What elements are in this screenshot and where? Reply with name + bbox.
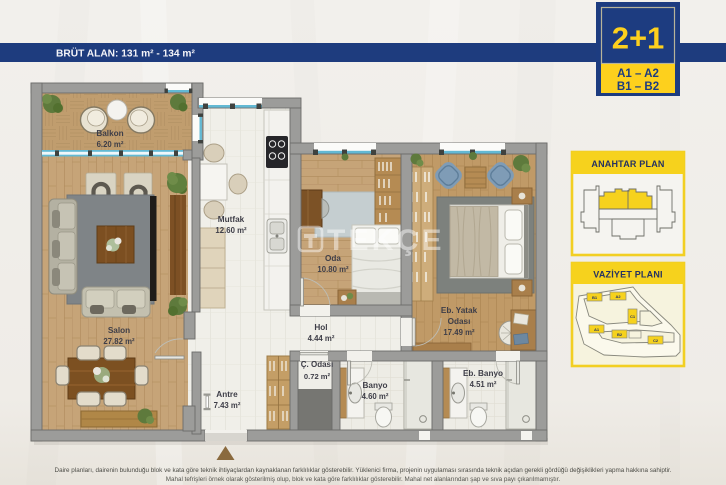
- svg-text:Salon: Salon: [108, 326, 130, 335]
- svg-text:4.60 m²: 4.60 m²: [362, 392, 389, 401]
- svg-text:BRÜT ALAN: 131 m² - 134 m²: BRÜT ALAN: 131 m² - 134 m²: [56, 47, 195, 60]
- svg-text:17.49 m²: 17.49 m²: [443, 328, 475, 337]
- svg-text:A1 – A2: A1 – A2: [617, 68, 659, 80]
- svg-text:2+1: 2+1: [612, 21, 665, 56]
- svg-text:Banyo: Banyo: [362, 381, 387, 390]
- svg-text:TEKÇE: TEKÇE: [327, 224, 445, 257]
- svg-text:Odası: Odası: [448, 317, 471, 326]
- svg-text:Mutfak: Mutfak: [218, 215, 245, 224]
- svg-text:B1: B1: [592, 295, 598, 300]
- svg-text:27.82 m²: 27.82 m²: [103, 337, 135, 346]
- svg-text:Eb. Banyo: Eb. Banyo: [463, 369, 503, 378]
- svg-text:C2: C2: [653, 338, 659, 343]
- svg-text:A1: A1: [594, 327, 600, 332]
- svg-text:7.43 m²: 7.43 m²: [214, 401, 241, 410]
- svg-text:B2: B2: [617, 332, 623, 337]
- svg-text:6.20 m²: 6.20 m²: [97, 140, 124, 149]
- svg-text:Antre: Antre: [216, 390, 238, 399]
- svg-text:0.72 m²: 0.72 m²: [304, 372, 331, 381]
- svg-text:Mahal tefrişleri örnek olarak: Mahal tefrişleri örnek olarak gösterilmi…: [166, 476, 561, 483]
- svg-text:Ç. Odası: Ç. Odası: [301, 360, 333, 369]
- svg-text:4.51 m²: 4.51 m²: [470, 380, 497, 389]
- svg-text:B1 – B2: B1 – B2: [617, 81, 659, 93]
- svg-text:10.80 m²: 10.80 m²: [317, 265, 349, 274]
- svg-text:12.60 m²: 12.60 m²: [215, 226, 247, 235]
- svg-text:Balkon: Balkon: [96, 129, 123, 138]
- svg-text:Hol: Hol: [314, 323, 327, 332]
- svg-text:4.44 m²: 4.44 m²: [308, 334, 335, 343]
- svg-text:Eb. Yatak: Eb. Yatak: [441, 306, 478, 315]
- svg-text:C1: C1: [630, 314, 636, 319]
- svg-text:A2: A2: [615, 294, 621, 299]
- svg-text:VAZİYET PLANI: VAZİYET PLANI: [593, 270, 662, 280]
- svg-text:Daire planları, dairenin bulun: Daire planları, dairenin bulunduğu blok …: [55, 467, 672, 474]
- svg-text:ANAHTAR PLAN: ANAHTAR PLAN: [591, 159, 664, 169]
